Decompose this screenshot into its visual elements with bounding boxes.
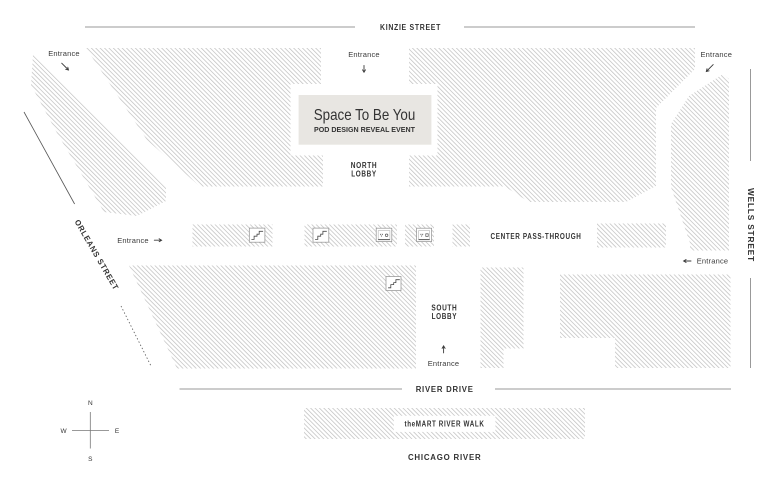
svg-text:N: N [88,400,93,407]
svg-text:W: W [61,428,68,435]
svg-text:KINZIE STREET: KINZIE STREET [380,23,441,32]
svg-text:ORLEANS STREET: ORLEANS STREET [73,218,121,292]
svg-text:Entrance: Entrance [428,359,460,368]
svg-text:theMART RIVER WALK: theMART RIVER WALK [405,420,485,429]
svg-text:Entrance: Entrance [348,50,380,59]
svg-text:LOBBY: LOBBY [351,170,377,179]
svg-text:E: E [115,428,120,435]
svg-text:Space To Be You: Space To Be You [314,107,416,124]
svg-text:Entrance: Entrance [700,50,732,59]
svg-text:RIVER DRIVE: RIVER DRIVE [416,385,474,394]
svg-text:POD DESIGN REVEAL EVENT: POD DESIGN REVEAL EVENT [314,125,416,134]
svg-text:CHICAGO RIVER: CHICAGO RIVER [408,453,482,462]
svg-text:Entrance: Entrance [697,257,729,266]
svg-text:Entrance: Entrance [48,49,80,58]
svg-text:WELLS STREET: WELLS STREET [746,188,755,262]
svg-text:LOBBY: LOBBY [432,312,458,321]
svg-text:S: S [88,456,93,463]
svg-text:CENTER PASS-THROUGH: CENTER PASS-THROUGH [491,232,582,241]
svg-text:Entrance: Entrance [117,236,149,245]
